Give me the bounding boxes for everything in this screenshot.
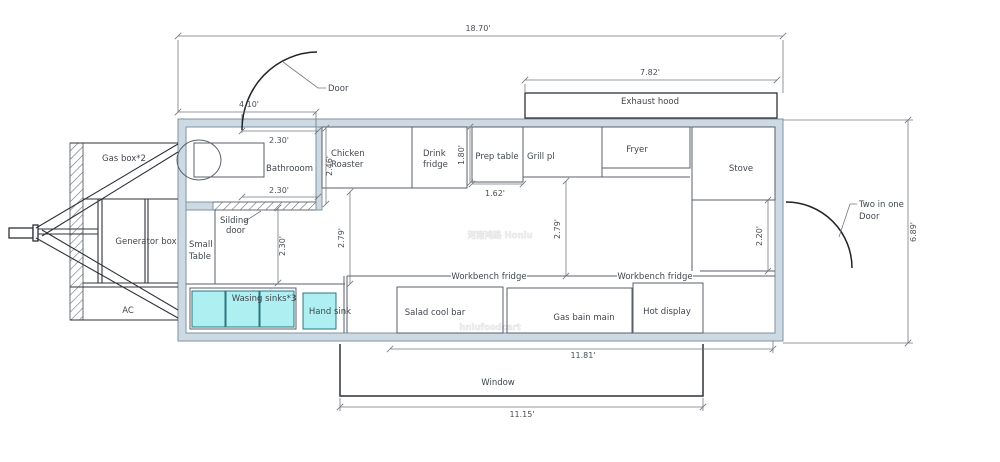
drink-fridge-label-2: fridge bbox=[423, 160, 448, 170]
dim-overall-length-label: 18.70' bbox=[465, 24, 490, 33]
dim-drink-fridge-depth-label: 1.80' bbox=[457, 145, 466, 165]
two-in-one-door-label-2: Door bbox=[859, 212, 880, 222]
hot-display-label: Hot display bbox=[643, 307, 691, 317]
gas-bain-main-label: Gas bain main bbox=[553, 313, 614, 323]
dim-hood-length-label: 7.82' bbox=[640, 68, 660, 77]
dim-counter-length-label: 11.81' bbox=[570, 351, 595, 360]
bathroom-wall-stub bbox=[186, 202, 213, 210]
dim-front-section-label: 4.10' bbox=[239, 100, 259, 109]
dim-aisle-left-label: 2.79' bbox=[337, 228, 346, 248]
watermark-line-1: 河南鸿路 Honlu bbox=[468, 230, 533, 241]
salad-cool-bar-label: Salad cool bar bbox=[405, 308, 466, 318]
sliding-door-label-2: door bbox=[226, 226, 246, 236]
window-label: Window bbox=[481, 378, 515, 388]
stove-label: Stove bbox=[729, 164, 753, 174]
two-in-one-door-label-1: Two in one bbox=[858, 200, 904, 210]
fryer-label: Fryer bbox=[626, 145, 648, 155]
bathroom-label: Bathrooom bbox=[266, 164, 313, 174]
dim-bathroom-door-bottom-label: 2.30' bbox=[269, 186, 289, 195]
drink-fridge-label-1: Drink bbox=[423, 149, 446, 159]
grill-label: Grill pl bbox=[527, 152, 555, 162]
chicken-roaster-label-2: Roaster bbox=[331, 160, 364, 170]
dim-bathroom-door-top-label: 2.30' bbox=[269, 136, 289, 145]
chicken-roaster-label-1: Chicken bbox=[331, 149, 365, 159]
sliding-door-label-1: Silding bbox=[220, 216, 249, 226]
door-label: Door bbox=[328, 84, 349, 94]
gas-bain-main-box bbox=[507, 288, 632, 333]
workbench-fridge-label-2: Workbench fridge bbox=[617, 272, 692, 282]
hitch-coupler bbox=[9, 228, 33, 238]
floor-plan-svg: 18.70'7.82'4.10'2.30'2.30'2.46'1.80'1.62… bbox=[0, 0, 1000, 462]
dim-small-table-depth-label: 2.30' bbox=[278, 236, 287, 256]
small-table-label-1: Small bbox=[189, 240, 213, 250]
prep-table-label: Prep table bbox=[475, 152, 518, 162]
small-table-label-2: Table bbox=[188, 252, 211, 262]
dim-aisle-right-label: 2.79' bbox=[553, 219, 562, 239]
washing-sinks-label: Wasing sinks*3 bbox=[232, 294, 297, 304]
generator-box-label: Generator box bbox=[115, 237, 176, 247]
watermark-line-2: hnlufoodcart bbox=[459, 323, 521, 333]
dim-prep-table-width-label: 1.62' bbox=[485, 189, 505, 198]
exhaust-hood-label: Exhaust hood bbox=[621, 97, 679, 107]
hand-sink-label: Hand sink bbox=[309, 307, 351, 317]
workbench-fridge-label-1: Workbench fridge bbox=[451, 272, 526, 282]
wash-sink-1 bbox=[192, 291, 225, 327]
dim-window-length-label: 11.15' bbox=[509, 410, 534, 419]
floor-plan-canvas: 18.70'7.82'4.10'2.30'2.30'2.46'1.80'1.62… bbox=[0, 0, 1000, 462]
gas-box-label: Gas box*2 bbox=[102, 154, 146, 164]
annex-hatch-strip bbox=[70, 143, 83, 320]
sliding-door-hatch bbox=[213, 202, 318, 210]
dim-side-door-width-label: 2.20' bbox=[755, 226, 764, 246]
ac-label: AC bbox=[122, 306, 134, 316]
dim-overall-height-label: 6.89' bbox=[909, 222, 918, 242]
